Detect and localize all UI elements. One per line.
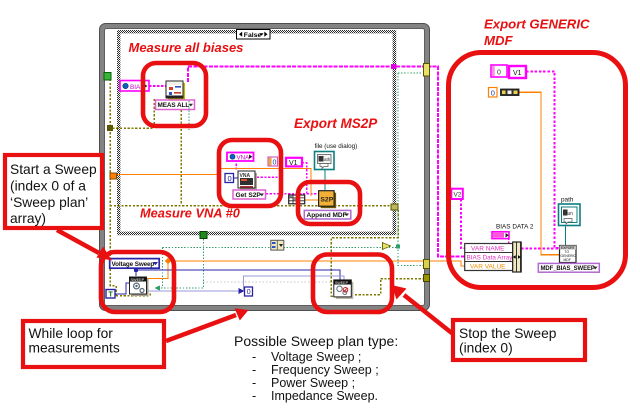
svg-text:(index 0 of a: (index 0 of a <box>10 179 86 194</box>
svg-text:V1: V1 <box>513 70 522 77</box>
svg-text:VAR NAME: VAR NAME <box>471 246 505 253</box>
svg-text:un: un <box>568 211 574 217</box>
svg-text:VAR VALUE: VAR VALUE <box>470 264 506 271</box>
svg-text:Stop the Sweep: Stop the Sweep <box>459 326 557 341</box>
svg-text:‘Sweep plan’: ‘Sweep plan’ <box>10 195 88 210</box>
svg-text:SWEEP: SWEEP <box>131 278 145 282</box>
svg-text:Measure all biases: Measure all biases <box>129 40 244 55</box>
svg-text:Measure VNA #0: Measure VNA #0 <box>140 206 240 221</box>
svg-text:Voltage Sweep: Voltage Sweep <box>112 261 155 268</box>
svg-text:0: 0 <box>273 160 277 167</box>
svg-text:-: - <box>252 363 256 377</box>
svg-text:BIAS Data Array: BIAS Data Array <box>467 254 514 261</box>
svg-text:Possible Sweep plan type:: Possible Sweep plan type: <box>234 333 398 349</box>
svg-text:Voltage Sweep ;: Voltage Sweep ; <box>271 350 361 364</box>
svg-text:Start a Sweep: Start a Sweep <box>10 162 97 177</box>
svg-text:Append MDF: Append MDF <box>307 212 347 219</box>
svg-text:file (use dialog): file (use dialog) <box>315 143 358 150</box>
svg-text:Export GENERIC: Export GENERIC <box>484 17 590 32</box>
svg-text:0: 0 <box>228 174 232 183</box>
svg-text:path: path <box>561 197 574 204</box>
svg-text:0: 0 <box>497 70 501 77</box>
svg-text:-: - <box>252 389 256 403</box>
svg-text:BIAS DATA 2: BIAS DATA 2 <box>496 224 534 231</box>
svg-text:MDF: MDF <box>564 258 571 262</box>
svg-text:V1: V1 <box>289 160 298 167</box>
svg-text:T: T <box>109 292 114 299</box>
svg-text:VNA: VNA <box>237 154 251 161</box>
svg-text:-: - <box>252 376 256 390</box>
svg-text:MDF_BIAS_SWEEP: MDF_BIAS_SWEEP <box>541 266 595 272</box>
svg-text:measurements: measurements <box>29 341 120 356</box>
svg-text:S2P: S2P <box>320 197 333 204</box>
svg-text:MDF: MDF <box>484 33 514 48</box>
svg-text:0: 0 <box>247 289 251 296</box>
svg-text:-: - <box>252 350 256 364</box>
svg-text:Power Sweep ;: Power Sweep ; <box>271 376 355 390</box>
svg-text:Impedance Sweep.: Impedance Sweep. <box>271 389 378 403</box>
svg-text:BIA: BIA <box>130 84 141 91</box>
svg-text:array): array) <box>10 211 46 226</box>
svg-text:ath: ath <box>324 157 331 162</box>
svg-text:(index 0): (index 0) <box>459 341 513 356</box>
svg-text:Frequency Sweep ;: Frequency Sweep ; <box>271 363 379 377</box>
svg-text:Export MS2P: Export MS2P <box>294 116 378 131</box>
svg-text:False: False <box>244 32 262 39</box>
svg-text:0: 0 <box>491 88 495 97</box>
svg-text:MEAS ALL: MEAS ALL <box>158 102 190 109</box>
svg-text:Get S2P: Get S2P <box>236 192 262 199</box>
svg-text:SWEEP: SWEEP <box>335 281 349 285</box>
svg-text:V2: V2 <box>454 192 462 199</box>
svg-text:While loop for: While loop for <box>29 326 114 341</box>
